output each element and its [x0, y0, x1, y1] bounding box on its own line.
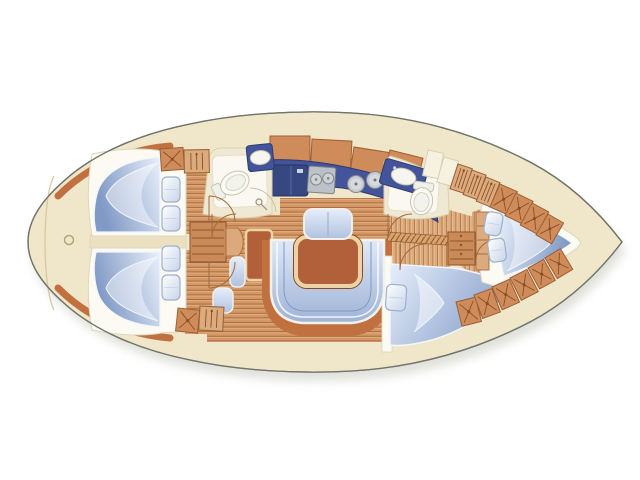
- pillow: [162, 275, 180, 300]
- hull-locker-x-icon: [176, 308, 200, 333]
- aft-head: [203, 143, 276, 218]
- companionway-steps: [190, 222, 226, 262]
- bench-sofa: [304, 209, 352, 239]
- washbasin: [246, 143, 275, 172]
- pillow: [162, 177, 180, 202]
- hull-locker-rail-icon: [184, 150, 209, 173]
- pillow: [385, 284, 407, 311]
- chest-of-drawers: [448, 232, 475, 265]
- pillow: [483, 211, 504, 237]
- saloon-table: [296, 237, 360, 286]
- pillow: [487, 238, 507, 263]
- stove-two-burner: [307, 166, 336, 194]
- fridge: [271, 165, 308, 196]
- companionway: [190, 222, 243, 262]
- pillow: [162, 246, 180, 271]
- galley-locker: [270, 136, 310, 162]
- hull-locker-x-icon: [160, 147, 184, 171]
- fridge-latch-icon: [297, 169, 303, 173]
- companionway-landing: [226, 228, 243, 256]
- nav-seat: [230, 257, 245, 287]
- hull-locker-rail-icon: [199, 306, 224, 331]
- stbd-cabin-floor: [390, 243, 450, 267]
- yacht-floorplan: [0, 0, 640, 480]
- yacht-floorplan-canvas: [0, 0, 640, 480]
- pillow: [162, 206, 180, 231]
